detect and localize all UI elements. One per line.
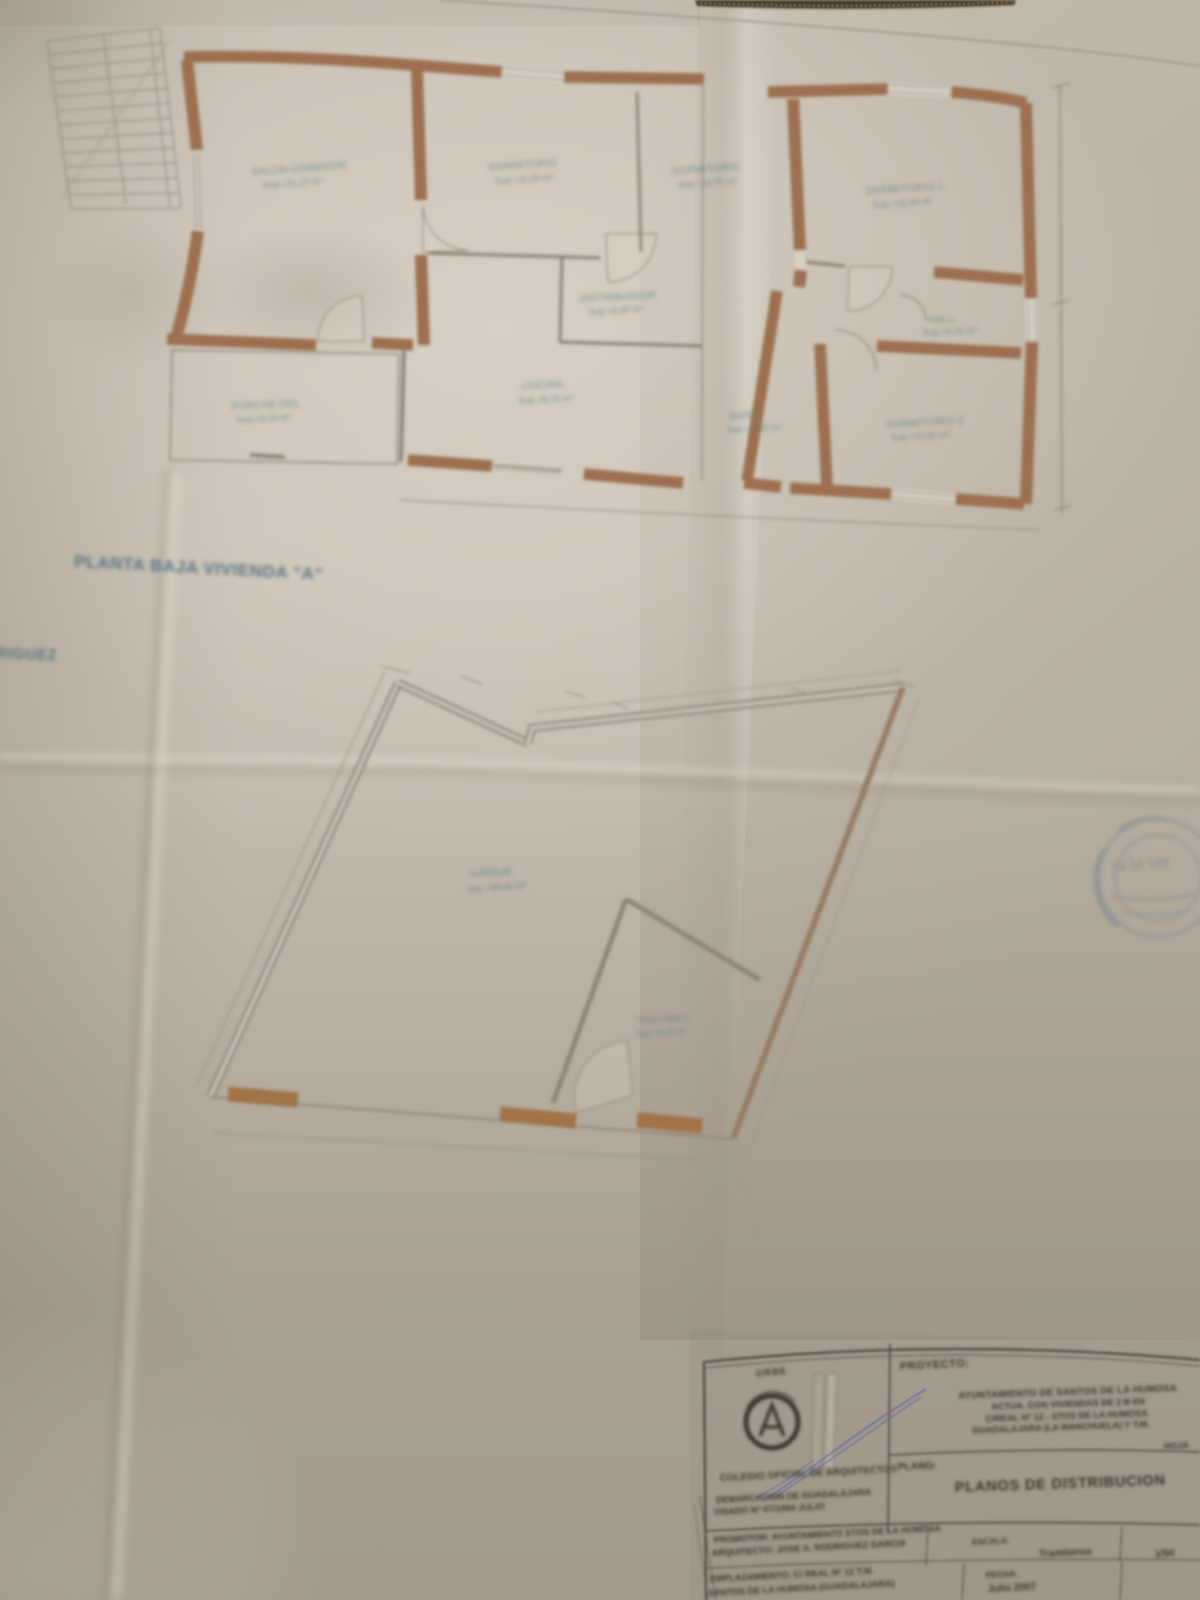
- svg-text:1/94: 1/94: [1155, 1548, 1175, 1560]
- svg-text:PLANO:: PLANO:: [898, 1461, 937, 1473]
- svg-text:COCINA: COCINA: [522, 379, 564, 392]
- svg-text:HOJA: HOJA: [1164, 1440, 1190, 1451]
- svg-text:HALL: HALL: [929, 314, 956, 326]
- svg-text:GARAJE: GARAJE: [470, 866, 513, 879]
- svg-text:FECHA:: FECHA:: [986, 1568, 1019, 1580]
- svg-text:ESCALA:: ESCALA:: [972, 1535, 1010, 1547]
- svg-text:RODRIGUEZ: RODRIGUEZ: [0, 644, 58, 664]
